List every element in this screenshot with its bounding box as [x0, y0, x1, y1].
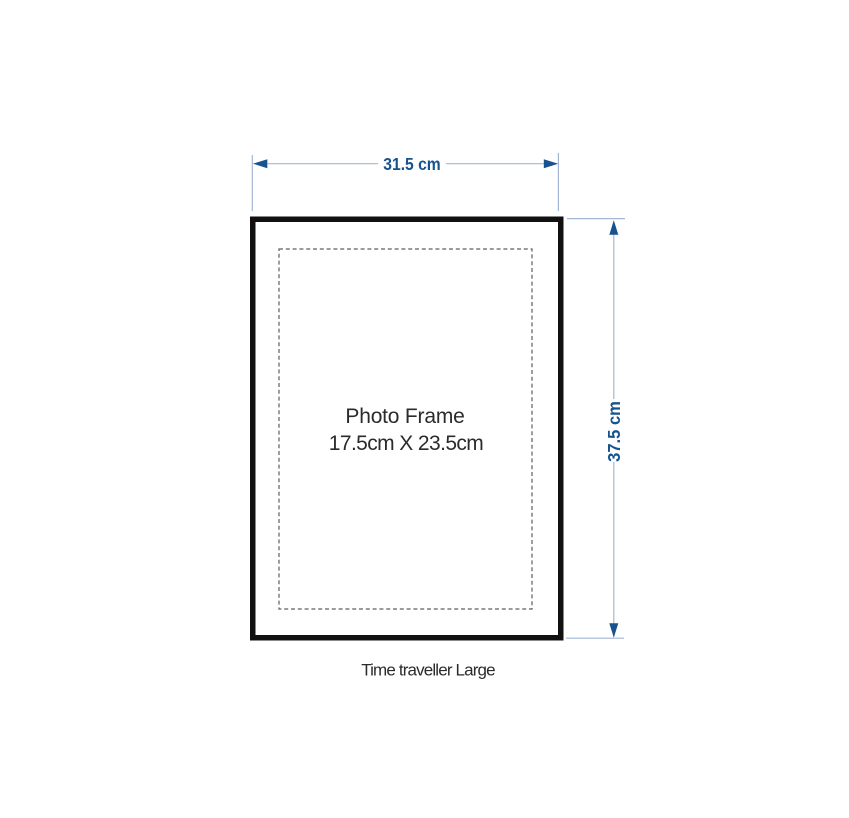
svg-text:Time traveller Large: Time traveller Large — [361, 660, 495, 679]
svg-text:37.5 cm: 37.5 cm — [603, 401, 624, 462]
svg-text:17.5cm X 23.5cm: 17.5cm X 23.5cm — [329, 432, 484, 455]
svg-text:31.5 cm: 31.5 cm — [383, 154, 440, 174]
svg-text:Photo Frame: Photo Frame — [345, 405, 464, 428]
